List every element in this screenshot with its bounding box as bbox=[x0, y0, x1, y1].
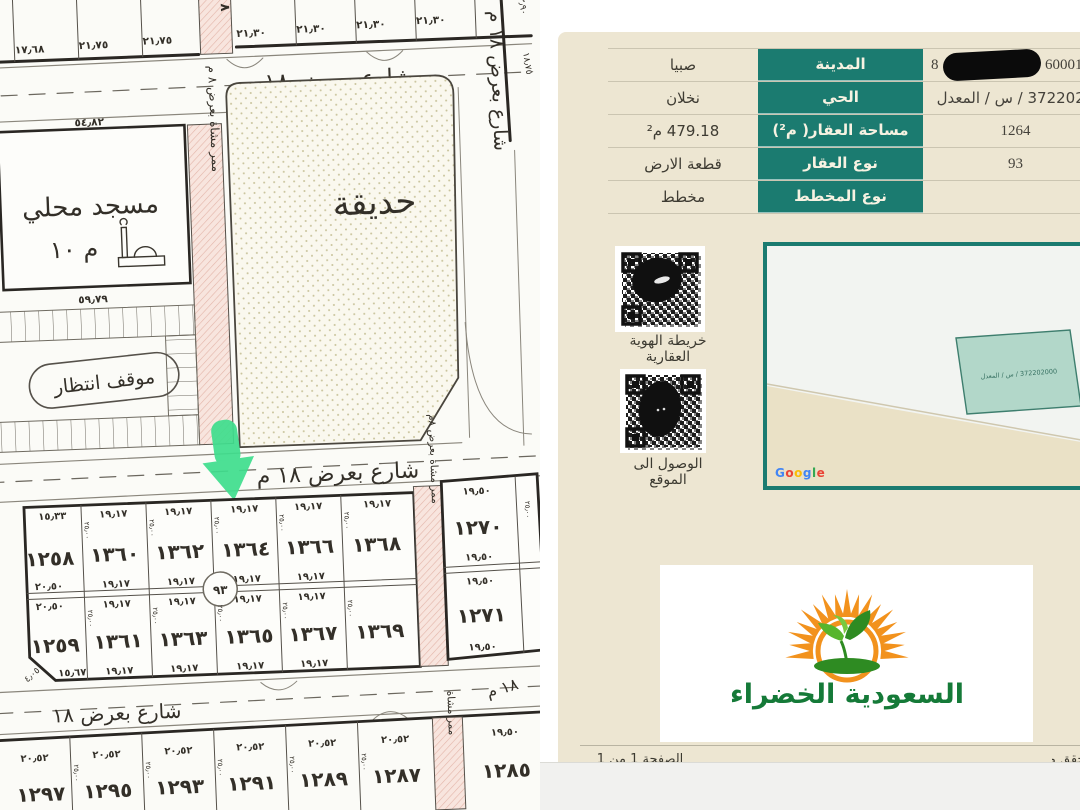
dim-label: ٢٠٫٥٢ bbox=[308, 738, 337, 750]
dim-label: ١٩٫١٧ bbox=[102, 579, 131, 591]
dim-label: ١٩٫١٧ bbox=[167, 596, 196, 608]
bottom-strip bbox=[540, 762, 1080, 810]
identity-prefix: 8 bbox=[931, 49, 939, 81]
footer-divider bbox=[580, 745, 1080, 746]
plot-number: ١٣٦٦ bbox=[285, 534, 335, 560]
depth-dim: ٢٥٫٠٠ bbox=[216, 759, 225, 777]
depth-dim: ٢٥٫٠٠ bbox=[83, 522, 92, 540]
dim-label: ١٩٫١٧ bbox=[294, 501, 323, 513]
parking-lot: موقف انتظار bbox=[0, 305, 200, 453]
dim-label: ٢٠٫٥٠ bbox=[35, 581, 64, 593]
street-bottom-label: شارع بعرض ١٨ bbox=[52, 699, 182, 728]
dim-label: ١٩٫١٧ bbox=[167, 576, 196, 588]
identity-number: 8 60001 bbox=[923, 49, 1080, 81]
area-value: 479.18 م² bbox=[608, 115, 758, 147]
saudi-green-logo-overlay: السعودية الخضراء bbox=[660, 565, 1033, 742]
depth-dim: ٢٥٫٠٠ bbox=[144, 761, 153, 779]
depth-dim: ٢٥٫٠٠ bbox=[86, 610, 95, 628]
depth-dim: ٢٥٫٠٠ bbox=[72, 764, 81, 782]
city-label: المدينة bbox=[758, 49, 923, 81]
mosque-bottom-dim: ٥٩٫٧٩ bbox=[78, 293, 109, 306]
plot-number: ١٢٨٧ bbox=[372, 762, 422, 788]
dim-label: ١٩٫٥٠ bbox=[462, 486, 491, 498]
dim-label: ٢١٫٣٠ bbox=[236, 27, 266, 40]
dim-label: ٢١٫٧٥ bbox=[78, 39, 108, 52]
plot-number: ١٢٥٩ bbox=[30, 632, 80, 658]
google-letter: G bbox=[775, 466, 785, 480]
plot-number: ١٣٦٥ bbox=[224, 623, 274, 649]
block-93: ١٥٫٣٣ ١٩٫١٧ ١٩٫١٧ ١٩٫١٧ ١٩٫١٧ ١٩٫١٧ ١٢٥٨… bbox=[16, 493, 420, 686]
passage-top: ٨ م bbox=[198, 0, 233, 54]
dim-label: ١٩٫٥٠ bbox=[465, 552, 494, 564]
plot-number: ١٢٧٠ bbox=[453, 514, 503, 540]
plot-number: ١٢٩٣ bbox=[155, 774, 205, 800]
google-letter: g bbox=[803, 466, 812, 480]
dim-label: ١٩٫١٧ bbox=[105, 665, 134, 677]
google-letter: o bbox=[785, 466, 794, 480]
dim-label: ١٩٫١٧ bbox=[300, 658, 329, 670]
dim-label: ٢٠٫٥٢ bbox=[20, 753, 49, 765]
dim-label: ١٩٫١٧ bbox=[164, 506, 193, 518]
district-value: نخلان bbox=[608, 82, 758, 114]
dim-label: ٢١٫٣٠ bbox=[416, 14, 446, 27]
logo-title: السعودية الخضراء bbox=[730, 679, 964, 710]
dim-label: ٢١٫٧٥ bbox=[142, 34, 172, 47]
plan-number-value: 372202000 / س / المعدل bbox=[930, 82, 1080, 114]
dim-label: ١٩٫١٧ bbox=[297, 591, 326, 603]
block-right: ١٩٫٥٠ ١٩٫٥٠ ١٩٫٥٠ ١٩٫٥٠ ١٢٧٠ ١٢٧١ ٢٥٫٠٠ bbox=[441, 474, 540, 660]
dim-label: ١٧٫٦٨ bbox=[15, 43, 46, 56]
plot-number: ١٢٨٩ bbox=[299, 766, 349, 792]
mosque-block: ٥٤٫٨٢ ٥٩٫٧٩ مسجد محلي م ١٠ bbox=[0, 113, 191, 309]
dim-label: ١٩٫١٧ bbox=[230, 504, 259, 516]
plot-number: ١٣٦٤ bbox=[221, 536, 271, 562]
table-row: صبيا المدينة 8 60001 bbox=[608, 48, 1080, 82]
dim-label: ١٥٫٦٧ bbox=[58, 667, 87, 679]
plan-type-label: نوع المخطط bbox=[758, 181, 923, 213]
depth-dim: ٢٥٫٠٠ bbox=[288, 756, 297, 774]
depth-dim: ٢٥٫٠٠ bbox=[346, 600, 355, 618]
plot-number: ١٢٨٥ bbox=[482, 757, 532, 783]
depth-dim: ٢٥٫٠٠ bbox=[523, 501, 532, 519]
plot-number-value: 1264 bbox=[923, 115, 1080, 147]
table-row: قطعة الارض نوع العقار 93 bbox=[608, 148, 1080, 181]
depth-dim: ٢٥٫٠٠ bbox=[147, 519, 156, 537]
district-label: الحي bbox=[758, 82, 923, 114]
dim-label: ١٩٫١٧ bbox=[170, 663, 199, 675]
table-row: مخطط نوع المخطط bbox=[608, 181, 1080, 214]
area-label: مساحة العقار( م²) bbox=[758, 115, 923, 147]
park-label: حديقة bbox=[332, 181, 417, 224]
depth-dim: ٢٥٫٠٠ bbox=[151, 607, 160, 625]
identity-suffix: 60001 bbox=[1045, 49, 1080, 81]
qr-code-identity bbox=[615, 246, 705, 332]
property-type-label: نوع العقار bbox=[758, 148, 923, 180]
city-value: صبيا bbox=[608, 49, 758, 81]
qr-identity-label: خريطة الهوية العقارية bbox=[608, 333, 728, 365]
mosque-label: مسجد محلي bbox=[22, 189, 160, 224]
plot-number: ١٣٦٧ bbox=[288, 621, 338, 647]
google-letter: o bbox=[794, 466, 803, 480]
dim-label: ٢٠٫٥٢ bbox=[381, 734, 410, 746]
dim-label: ١٩٫١٧ bbox=[233, 593, 262, 605]
block-number: ٩٣ bbox=[213, 583, 229, 598]
dim-label: ١٩٫٥٠ bbox=[468, 641, 497, 653]
plot-number: ١٢٧١ bbox=[457, 602, 507, 628]
depth-dim: ٢٥٫٠٠ bbox=[277, 514, 286, 532]
plot-number: ١٢٩٥ bbox=[83, 778, 133, 804]
dim-label: ١٩٫١٧ bbox=[99, 509, 128, 521]
dim-label: ١٩٫١٧ bbox=[236, 660, 265, 672]
minimap: 372202000 / س / المعدل Google bbox=[763, 242, 1080, 490]
saudi-green-logo: السعودية الخضراء bbox=[697, 579, 997, 719]
qr-location-label: الوصول الى الموقع bbox=[613, 456, 723, 488]
table-row: نخلان الحي 372202000 / س / المعدل bbox=[608, 82, 1080, 115]
plan-type-value: مخطط bbox=[608, 181, 758, 213]
plot-number: ١٢٩١ bbox=[227, 770, 277, 796]
plot-number: ١٣٦٣ bbox=[158, 626, 208, 652]
plot-number: ١٣٦٩ bbox=[355, 618, 405, 644]
mosque-top-dim: ٥٤٫٨٢ bbox=[74, 116, 105, 129]
google-letter: e bbox=[817, 466, 826, 480]
dim-label: ١٩٫٥٠ bbox=[466, 576, 495, 588]
dim-label: ٢٠٫٥٠ bbox=[36, 601, 65, 613]
property-type-value: قطعة الارض bbox=[608, 148, 758, 180]
dim-label: ١٩٫١٧ bbox=[363, 498, 392, 510]
empty-value bbox=[923, 181, 1080, 213]
block-number-value: 93 bbox=[923, 148, 1080, 180]
redaction-blob bbox=[942, 48, 1041, 81]
dim-label: ١٥٫٣٣ bbox=[38, 511, 67, 523]
plat-map: ١٧٫٦٨ ٢١٫٧٥ ٢١٫٧٥ ٨ م ٢١٫٣٠ bbox=[0, 0, 540, 810]
passage-width-label: ٨ م bbox=[216, 0, 232, 12]
google-logo: Google bbox=[775, 466, 825, 480]
plot-number: ١٢٥٨ bbox=[25, 546, 75, 572]
property-document: صبيا المدينة 8 60001 نخلان الحي 37220200… bbox=[540, 0, 1080, 810]
property-table: صبيا المدينة 8 60001 نخلان الحي 37220200… bbox=[608, 48, 1080, 214]
depth-dim: ٢٥٫٠٠ bbox=[360, 753, 369, 771]
dim-label: ١٩٫١٧ bbox=[297, 571, 326, 583]
mosque-number: م ١٠ bbox=[49, 234, 98, 264]
dim-label: ٢١٫٣٠ bbox=[296, 23, 326, 36]
table-row: 479.18 م² مساحة العقار( م²) 1264 bbox=[608, 115, 1080, 148]
dim-label: ٢٠٫٥٢ bbox=[236, 741, 265, 753]
dim-label: ٢٠٫٥٢ bbox=[164, 745, 193, 757]
depth-dim: ٢٥٫٠٠ bbox=[216, 605, 225, 623]
depth-dim: ٢٥٫٠٠ bbox=[212, 517, 221, 535]
park: حديقة bbox=[226, 75, 467, 447]
passage-label: ممر مشاة bbox=[444, 691, 458, 736]
plot-number: ١٣٦٠ bbox=[90, 541, 140, 567]
dim-label: ١٩٫٥٠ bbox=[491, 727, 520, 739]
plot-number: ١٣٦١ bbox=[93, 628, 143, 654]
plot-number: ١٢٩٧ bbox=[16, 781, 66, 807]
depth-dim: ٢٥٫٠٠ bbox=[281, 602, 290, 620]
plot-number: ١٣٦٢ bbox=[155, 539, 205, 565]
dim-label: ٢٠٫٥٢ bbox=[92, 749, 121, 761]
qr-code-location bbox=[620, 369, 706, 453]
plot-number: ١٣٦٨ bbox=[352, 531, 402, 557]
dim-label: ١٩٫١٧ bbox=[102, 598, 131, 610]
dim-label: ٢١٫٣٠ bbox=[356, 18, 386, 31]
screenshot: ١٧٫٦٨ ٢١٫٧٥ ٢١٫٧٥ ٨ م ٢١٫٣٠ bbox=[0, 0, 1080, 810]
depth-dim: ٢٥٫٠٠ bbox=[342, 512, 351, 530]
